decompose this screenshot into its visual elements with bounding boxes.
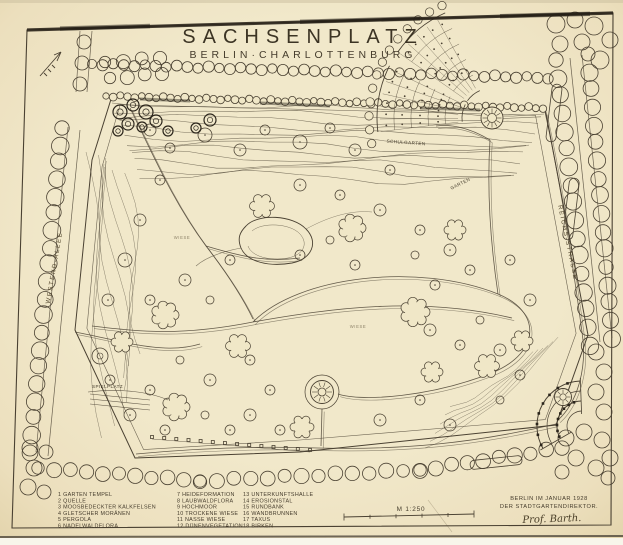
terrace-pillar [548, 394, 551, 397]
fan-plant-dot [451, 57, 453, 59]
tree-center-dot [204, 134, 206, 136]
legend-item: 15 RUNDBANK [243, 505, 284, 511]
page-subtitle: BERLIN·CHARLOTTENBURG [190, 49, 417, 61]
tree-center-dot [379, 209, 381, 211]
hedge-scallop [103, 93, 109, 99]
shrub-cloud-center [167, 398, 185, 416]
tree-center-dot [299, 141, 301, 143]
hedge-scallop [346, 100, 353, 107]
fan-plant-dot [445, 62, 447, 64]
hedge-scallop [203, 94, 210, 101]
tree-center-dot [249, 414, 251, 416]
terrace-pillar [559, 412, 562, 415]
tree-center-dot [184, 279, 186, 281]
hedge-scallop [311, 98, 317, 104]
hedge-scallop [339, 99, 347, 107]
fan-plant-dot [420, 62, 422, 64]
hedge-scallop [246, 95, 253, 102]
tree-center-dot [509, 259, 511, 261]
shrub-cloud-center [515, 334, 529, 348]
hedge-scallop [289, 96, 296, 103]
hedge-scallop [539, 105, 546, 112]
plan-drawing: SACHSENPLATZ BERLIN·CHARLOTTENBURG WESTE… [0, 0, 623, 545]
label-wiese-center: WIESE [350, 324, 367, 329]
fan-plant-dot [439, 67, 441, 69]
fan-border-shrub [373, 71, 381, 79]
fan-plant-dot [419, 115, 421, 117]
hedge-scallop [253, 97, 261, 105]
terrace-pillar [556, 430, 559, 433]
shrub-cloud-center [115, 335, 129, 349]
tree-center-dot [149, 299, 151, 301]
tree-center-dot [329, 127, 331, 129]
fan-plant-dot [426, 55, 428, 57]
scanned-plan-sheet: SACHSENPLATZ BERLIN·CHARLOTTENBURG WESTE… [0, 0, 623, 545]
fan-plant-dot [388, 92, 390, 94]
hedge-scallop [239, 97, 246, 104]
fan-border-shrub [425, 8, 433, 16]
fan-plant-dot [402, 105, 404, 107]
tree-center-dot [529, 299, 531, 301]
shrub-cloud-center [294, 419, 310, 435]
fan-plant-dot [452, 80, 454, 82]
tree-center-dot [469, 269, 471, 271]
hedge-scallop [353, 98, 361, 106]
tree-center-dot [164, 429, 166, 431]
fan-plant-dot [437, 115, 439, 117]
hedge-scallop [418, 100, 425, 107]
legend-item: 1 GARTEN TEMPEL [58, 492, 112, 498]
shrub-cloud-center [156, 306, 174, 324]
tree-center-dot [339, 194, 341, 196]
fan-plant-dot [466, 69, 468, 71]
fan-plant-dot [434, 73, 436, 75]
tree-center-dot [107, 299, 109, 301]
hedge-scallop [518, 105, 524, 111]
fan-plant-dot [439, 104, 441, 106]
legend-item: 14 EROSIONSTAL [243, 498, 293, 504]
tree-center-dot [139, 219, 141, 221]
legend-item: 11 NASSE WIESE [177, 517, 226, 523]
tree-center-dot [279, 429, 281, 431]
hedge-dense-band [140, 99, 190, 101]
terrace-pillar [538, 412, 541, 415]
fan-plant-dot [432, 29, 434, 31]
tree-center-dot [239, 149, 241, 151]
shrub-cloud-center [254, 198, 270, 214]
fan-plant-dot [443, 93, 445, 95]
fan-plant-dot [433, 48, 435, 50]
terrace-pillar [542, 402, 545, 405]
tree-center-dot [419, 229, 421, 231]
terrace-pillar [557, 418, 560, 421]
hedge-scallop [231, 96, 239, 104]
fan-plant-dot [401, 114, 403, 116]
terrace-pillar [558, 435, 561, 438]
hedge-dense-band [420, 108, 480, 110]
hedge-scallop [225, 95, 231, 101]
shrub-cloud-center [425, 365, 439, 379]
credit-line2: DER STADTGARTENDIREKTOR. [500, 504, 598, 510]
scale-label: M 1:250 [397, 506, 426, 513]
legend-item: 7 HEIDEFORMATION [177, 492, 235, 498]
hedge-scallop [525, 103, 533, 111]
paper [0, 0, 623, 538]
fan-plant-dot [401, 123, 403, 125]
shrub-cloud-center [343, 219, 361, 237]
hedge-scallop [397, 100, 403, 106]
fan-plant-dot [440, 99, 442, 101]
tree-center-dot [159, 179, 161, 181]
hedge-scallop [332, 98, 339, 105]
fan-plant-dot [385, 113, 387, 115]
label-spielplatz: SPIELPLATZ [92, 384, 123, 389]
shrub-cloud-center [479, 358, 495, 374]
fan-plant-dot [449, 38, 451, 40]
tree-center-dot [299, 254, 301, 256]
fan-border-shrub [368, 139, 376, 147]
fan-plant-dot [420, 107, 422, 109]
fan-plant-dot [392, 81, 394, 83]
legend-item: 5 PERGOLA [58, 517, 91, 523]
fan-border-shrub [366, 98, 374, 106]
fan-plant-dot [441, 24, 443, 26]
fan-border-shrub [369, 84, 377, 92]
tree-center-dot [389, 169, 391, 171]
fan-plant-dot [441, 43, 443, 45]
fan-border-shrub [438, 1, 446, 9]
tree-center-dot [379, 419, 381, 421]
fan-border-shrub [365, 126, 373, 134]
hedge-scallop [504, 102, 511, 109]
tree-center-dot [449, 424, 451, 426]
terrace-pillar [557, 387, 560, 390]
legend-item: 4 GLETSCHER MORÄNEN [58, 510, 130, 517]
page-title: SACHSENPLATZ [182, 26, 423, 48]
tree-center-dot [229, 429, 231, 431]
fan-plant-dot [426, 86, 428, 88]
terrace-pillar [556, 424, 559, 427]
sheet-top-edge [0, 0, 623, 3]
hedge-scallop [210, 95, 217, 102]
fan-plant-dot [423, 93, 425, 95]
credit-line1: BERLIN IM JANUAR 1928 [510, 496, 588, 502]
hedge-scallop [217, 96, 225, 104]
sheet-bottom-edge [0, 536, 623, 537]
hedge-scallop [195, 96, 203, 104]
tree-center-dot [149, 389, 151, 391]
fan-plant-dot [457, 54, 459, 56]
legend-item: 10 TROCKENE WIESE [177, 511, 238, 517]
fan-plant-dot [438, 110, 440, 112]
tree-center-dot [299, 184, 301, 186]
tree-center-dot [354, 264, 356, 266]
legend-item: 16 WANDBRUNNEN [243, 511, 298, 517]
tree-center-dot [249, 359, 251, 361]
fan-plant-dot [456, 76, 458, 78]
terrace-pillar [540, 444, 543, 447]
shrub-cloud-center [230, 338, 246, 354]
fan-plant-dot [421, 100, 423, 102]
hedge-scallop [510, 104, 518, 112]
terrace-pillar [566, 382, 569, 385]
tree-center-dot [229, 259, 231, 261]
fan-plant-dot [410, 78, 412, 80]
tree-center-dot [354, 149, 356, 151]
legend-item: 18 BIRKEN [243, 524, 273, 530]
tree-center-dot [419, 399, 421, 401]
terrace-pillar [537, 434, 540, 437]
hedge-scallop [109, 93, 117, 101]
terrace-pillar [563, 407, 566, 410]
tree-center-dot [124, 259, 126, 261]
tree-center-dot [434, 284, 436, 286]
credit-signature: Prof. Barth. [521, 513, 581, 526]
fan-plant-dot [396, 71, 398, 73]
legend-item: 9 HOCHMOOR [177, 505, 217, 511]
tree-center-dot [499, 349, 501, 351]
fan-plant-dot [404, 95, 406, 97]
legend-item: 3 MOOSBEDECKTER KALKFELSEN [58, 505, 156, 511]
tree-center-dot [269, 389, 271, 391]
tree-center-dot [449, 249, 451, 251]
fan-plant-dot [385, 125, 387, 127]
legend-item: 8 LAUBWALDFLORA [177, 498, 234, 504]
tree-center-dot [149, 129, 151, 131]
shrub-cloud-center [448, 223, 462, 237]
legend-item: 13 UNTERKUNFTSHALLE [243, 492, 314, 498]
fan-border-shrub [365, 112, 373, 120]
terrace-pillar [536, 423, 539, 426]
legend-item: 6 NADELWALDFLORA [58, 524, 118, 530]
fan-plant-dot [407, 86, 409, 88]
tree-center-dot [129, 414, 131, 416]
label-wiese-west: WIESE [174, 235, 191, 240]
hedge-scallop [532, 105, 539, 112]
legend-item: 2 QUELLE [58, 498, 86, 504]
legend-item: 17 TAXUS [243, 517, 270, 523]
hedge-scallop [403, 101, 411, 109]
tree-center-dot [209, 379, 211, 381]
tree-center-dot [109, 379, 111, 381]
tree-center-dot [264, 129, 266, 131]
fan-plant-dot [419, 122, 421, 124]
tree-center-dot [459, 344, 461, 346]
fan-plant-dot [437, 121, 439, 123]
fan-plant-dot [461, 72, 463, 74]
fan-plant-dot [386, 102, 388, 104]
fan-plant-dot [449, 84, 451, 86]
legend-item: 12 DÜNENVEGETATION [177, 523, 243, 530]
terrace-pillar [573, 401, 576, 404]
tree-center-dot [169, 147, 171, 149]
tree-center-dot [429, 329, 431, 331]
hedge-scallop [117, 92, 124, 99]
tree-center-dot [519, 374, 521, 376]
shrub-cloud-center [405, 302, 425, 322]
